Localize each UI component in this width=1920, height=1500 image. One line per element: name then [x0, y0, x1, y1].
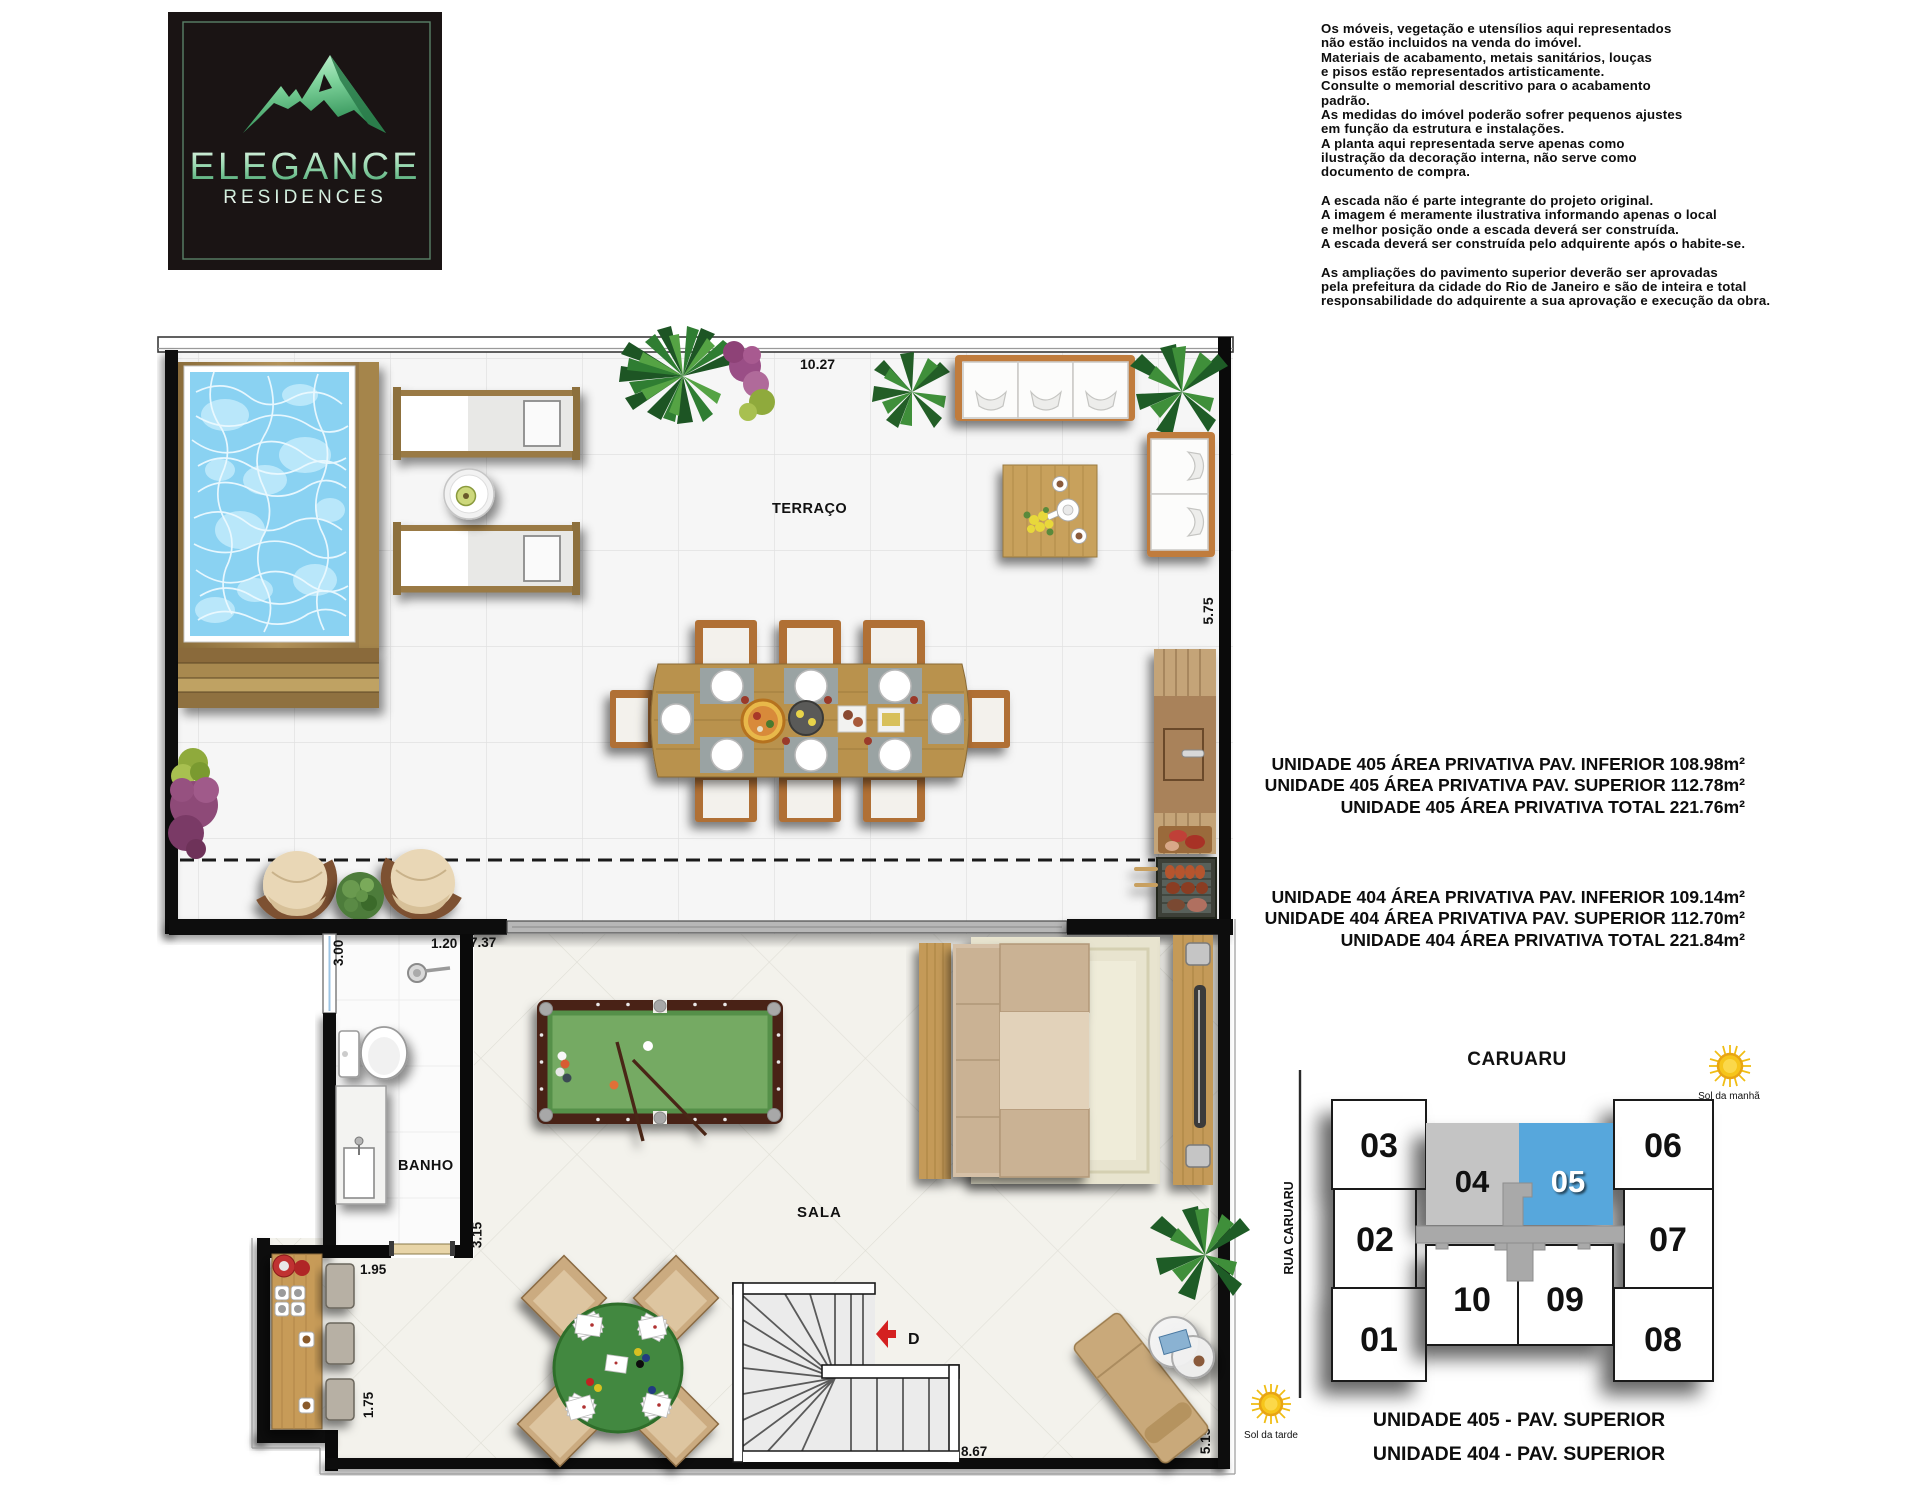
svg-text:7.37: 7.37 — [470, 935, 496, 950]
svg-text:D: D — [908, 1331, 920, 1348]
svg-text:05: 05 — [1551, 1164, 1585, 1199]
svg-text:5.75: 5.75 — [1200, 597, 1216, 624]
svg-text:1.75: 1.75 — [361, 1391, 376, 1418]
svg-text:3.15: 3.15 — [470, 1221, 485, 1248]
svg-text:SALA: SALA — [797, 1204, 842, 1221]
svg-text:BANHO: BANHO — [398, 1158, 454, 1174]
svg-text:3.00: 3.00 — [331, 940, 346, 966]
svg-text:1.95: 1.95 — [360, 1262, 387, 1277]
svg-text:03: 03 — [1360, 1127, 1398, 1165]
svg-text:UNIDADE 404 - PAV. SUPERIOR: UNIDADE 404 - PAV. SUPERIOR — [1373, 1443, 1665, 1465]
svg-text:10.27: 10.27 — [800, 356, 835, 372]
svg-text:10: 10 — [1453, 1281, 1491, 1319]
svg-text:Sol da tarde: Sol da tarde — [1244, 1430, 1298, 1441]
svg-text:04: 04 — [1455, 1164, 1490, 1199]
svg-text:TERRAÇO: TERRAÇO — [772, 501, 847, 517]
svg-text:06: 06 — [1644, 1127, 1682, 1165]
svg-text:08: 08 — [1644, 1321, 1682, 1359]
svg-text:UNIDADE 405 - PAV. SUPERIOR: UNIDADE 405 - PAV. SUPERIOR — [1373, 1409, 1665, 1431]
svg-text:8.67: 8.67 — [961, 1444, 987, 1459]
svg-text:RUA CARUARU: RUA CARUARU — [1282, 1181, 1296, 1274]
svg-text:02: 02 — [1356, 1221, 1394, 1259]
svg-text:CARUARU: CARUARU — [1467, 1049, 1567, 1070]
svg-text:09: 09 — [1546, 1281, 1584, 1319]
svg-text:07: 07 — [1649, 1221, 1687, 1259]
svg-text:Sol da manhã: Sol da manhã — [1698, 1091, 1760, 1102]
svg-text:01: 01 — [1360, 1321, 1398, 1359]
svg-text:1.20: 1.20 — [431, 936, 457, 951]
